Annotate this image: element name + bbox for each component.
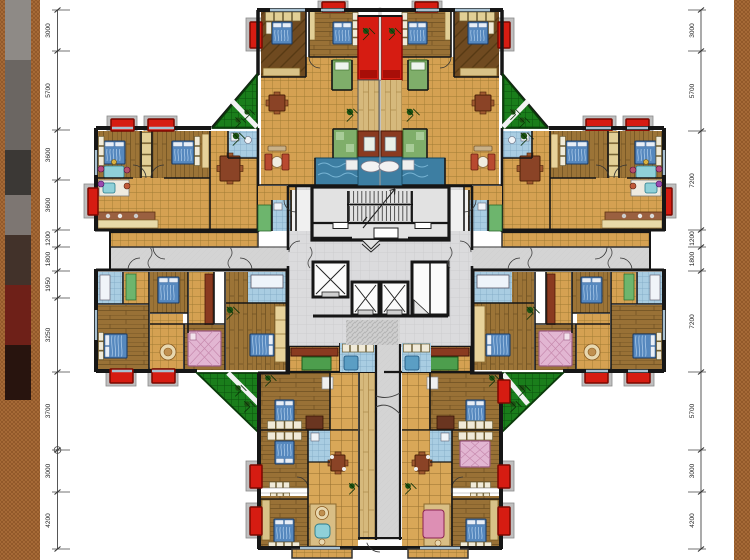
svg-text:3000: 3000 [689, 23, 696, 38]
svg-text:3600: 3600 [45, 197, 52, 212]
svg-text:1800: 1800 [689, 251, 696, 266]
svg-text:1200: 1200 [689, 231, 696, 246]
svg-text:7200: 7200 [689, 173, 696, 188]
svg-text:3000: 3000 [45, 23, 52, 38]
svg-text:7200: 7200 [689, 314, 696, 329]
svg-text:1950: 1950 [45, 277, 52, 292]
svg-text:4200: 4200 [689, 513, 696, 528]
svg-text:4200: 4200 [45, 513, 52, 528]
svg-text:1800: 1800 [45, 251, 52, 266]
svg-text:5700: 5700 [45, 83, 52, 98]
svg-text:3000: 3000 [45, 463, 52, 478]
svg-text:5700: 5700 [689, 83, 696, 98]
svg-text:3700: 3700 [45, 403, 52, 418]
svg-text:3000: 3000 [689, 463, 696, 478]
svg-text:3250: 3250 [45, 327, 52, 342]
svg-text:1200: 1200 [45, 231, 52, 246]
svg-text:3600: 3600 [45, 147, 52, 162]
svg-text:5700: 5700 [689, 403, 696, 418]
